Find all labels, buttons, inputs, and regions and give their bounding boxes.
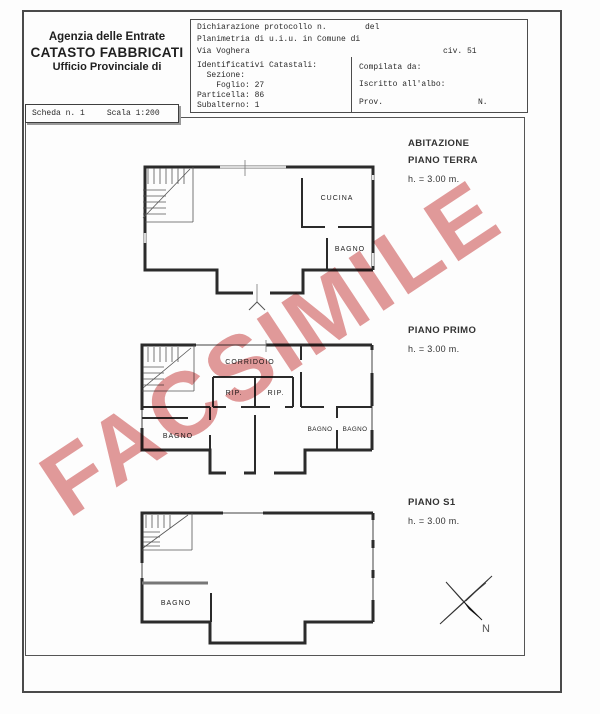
room-label-cucina: CUCINA [321, 195, 354, 202]
piano-s1-label: PIANO S1 [408, 494, 459, 511]
terra-staircase [143, 167, 193, 222]
piano-primo-height: h. = 3.00 m. [408, 341, 476, 358]
catastali-box: Identificativi Catastali: Sezione: Fogli… [190, 57, 353, 113]
scale-label: Scala 1:200 [107, 109, 160, 118]
terra-interior-walls [302, 178, 373, 270]
abitazione-label: ABITAZIONE [408, 135, 478, 152]
s1-outer-walls [142, 513, 373, 643]
prov-label: Prov. [359, 98, 383, 107]
room-label-bagno-terra: BAGNO [335, 246, 365, 253]
s1-windows [142, 513, 373, 600]
room-label-corridoio: CORRIDOIO [225, 359, 274, 366]
terra-outer-walls [145, 167, 373, 293]
protocol-box: Dichiarazione protocollo n. del Planimet… [190, 19, 528, 59]
office-line: Ufficio Provinciale di [28, 60, 186, 74]
piano-s1-height: h. = 3.00 m. [408, 513, 459, 530]
foglio-line: Foglio: 27 [197, 81, 264, 90]
compass-north-label: N [482, 623, 490, 635]
street-line: Via Voghera [197, 47, 250, 56]
terra-entry-door-mark [249, 302, 265, 310]
agency-header: Agenzia delle Entrate CATASTO FABBRICATI… [28, 30, 186, 74]
agency-name: Agenzia delle Entrate [28, 30, 186, 45]
s1-staircase [142, 513, 192, 550]
floor-title-primo: PIANO PRIMO h. = 3.00 m. [408, 322, 476, 358]
n-label: N. [478, 98, 488, 107]
particella-line: Particella: 86 [197, 91, 264, 100]
compass-rose: N [438, 572, 502, 638]
room-label-bagno-primo-left: BAGNO [163, 433, 193, 440]
scheda-number: Scheda n. 1 [32, 109, 85, 118]
floor-title-terra: ABITAZIONE PIANO TERRA h. = 3.00 m. [408, 135, 478, 188]
compass-star-icon [440, 576, 492, 624]
floorplan-piano-primo: CORRIDOIO RIP. RIP. BAGNO BAGNO BAGNO [138, 340, 378, 476]
scheda-box: Scheda n. 1 Scala 1:200 [25, 104, 179, 123]
room-label-bagno-primo-r2: BAGNO [343, 426, 368, 433]
piano-primo-label: PIANO PRIMO [408, 322, 476, 339]
piano-terra-label: PIANO TERRA [408, 152, 478, 169]
albo-label: Iscritto all'albo: [359, 80, 445, 89]
primo-staircase [142, 345, 194, 391]
catastali-title: Identificativi Catastali: [197, 61, 317, 70]
floorplan-piano-terra: CUCINA BAGNO [138, 160, 382, 312]
room-label-rip-1: RIP. [226, 390, 243, 397]
cadastral-sheet: Agenzia delle Entrate CATASTO FABBRICATI… [0, 0, 600, 714]
sezione-line: Sezione: [197, 71, 245, 80]
planimetria-line: Planimetria di u.i.u. in Comune di [197, 35, 360, 44]
floor-title-s1: PIANO S1 h. = 3.00 m. [408, 494, 459, 530]
piano-terra-height: h. = 3.00 m. [408, 171, 478, 188]
room-label-rip-2: RIP. [268, 390, 285, 397]
room-label-bagno-s1: BAGNO [161, 600, 191, 607]
room-label-bagno-primo-r1: BAGNO [308, 426, 333, 433]
catasto-title: CATASTO FABBRICATI [28, 45, 186, 60]
compilata-label: Compilata da: [359, 63, 421, 72]
civ-number: civ. 51 [443, 47, 477, 56]
subalterno-line: Subalterno: 1 [197, 101, 259, 110]
compilata-box: Compilata da: Iscritto all'albo: Prov. N… [351, 57, 528, 113]
protocol-label: Dichiarazione protocollo n. [197, 23, 327, 32]
floorplan-piano-s1: BAGNO [138, 508, 380, 654]
protocol-del-label: del [365, 23, 379, 32]
